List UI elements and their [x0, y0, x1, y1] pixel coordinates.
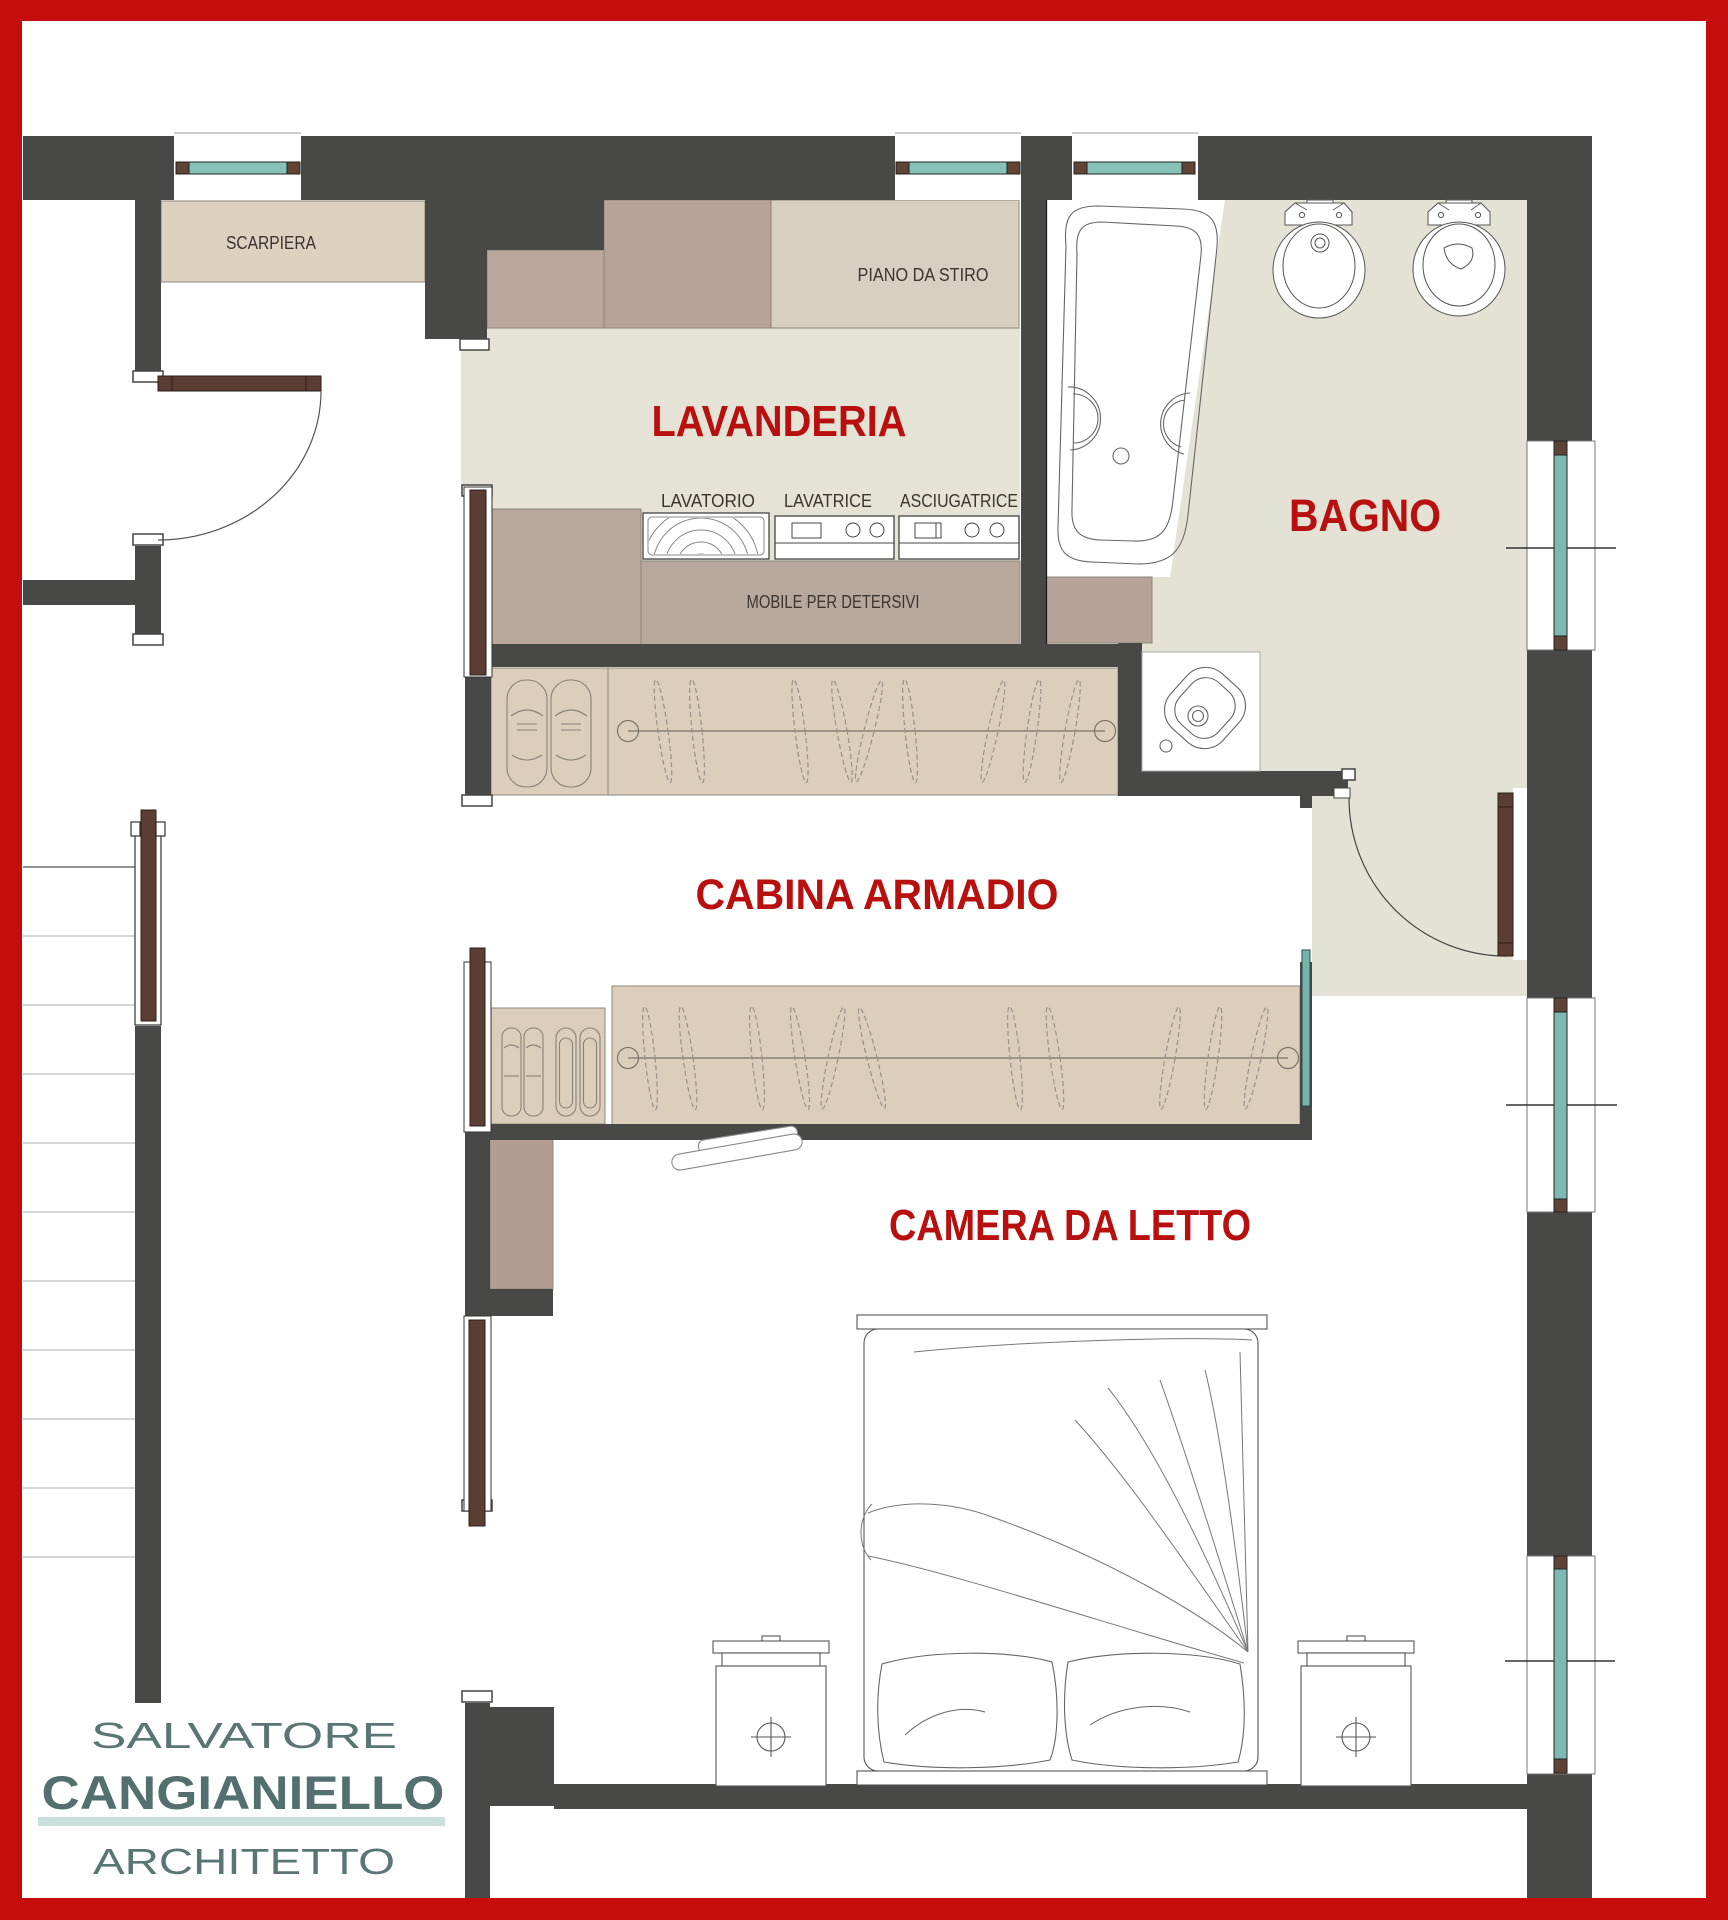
svg-text:ASCIUGATRICE: ASCIUGATRICE [900, 491, 1018, 511]
svg-text:LAVATORIO: LAVATORIO [661, 491, 755, 511]
svg-text:SALVATORE: SALVATORE [91, 1715, 397, 1756]
svg-text:SCARPIERA: SCARPIERA [226, 233, 316, 253]
svg-text:CAMERA DA LETTO: CAMERA DA LETTO [889, 1201, 1251, 1250]
svg-text:CANGIANIELLO: CANGIANIELLO [42, 1766, 445, 1819]
svg-text:LAVATRICE: LAVATRICE [784, 491, 872, 511]
svg-text:CABINA ARMADIO: CABINA ARMADIO [696, 871, 1059, 919]
svg-text:PIANO DA STIRO: PIANO DA STIRO [858, 265, 989, 285]
svg-text:BAGNO: BAGNO [1289, 490, 1441, 541]
svg-text:ARCHITETTO: ARCHITETTO [93, 1841, 395, 1882]
svg-text:MOBILE PER DETERSIVI: MOBILE PER DETERSIVI [747, 592, 920, 612]
svg-text:LAVANDERIA: LAVANDERIA [652, 397, 907, 446]
